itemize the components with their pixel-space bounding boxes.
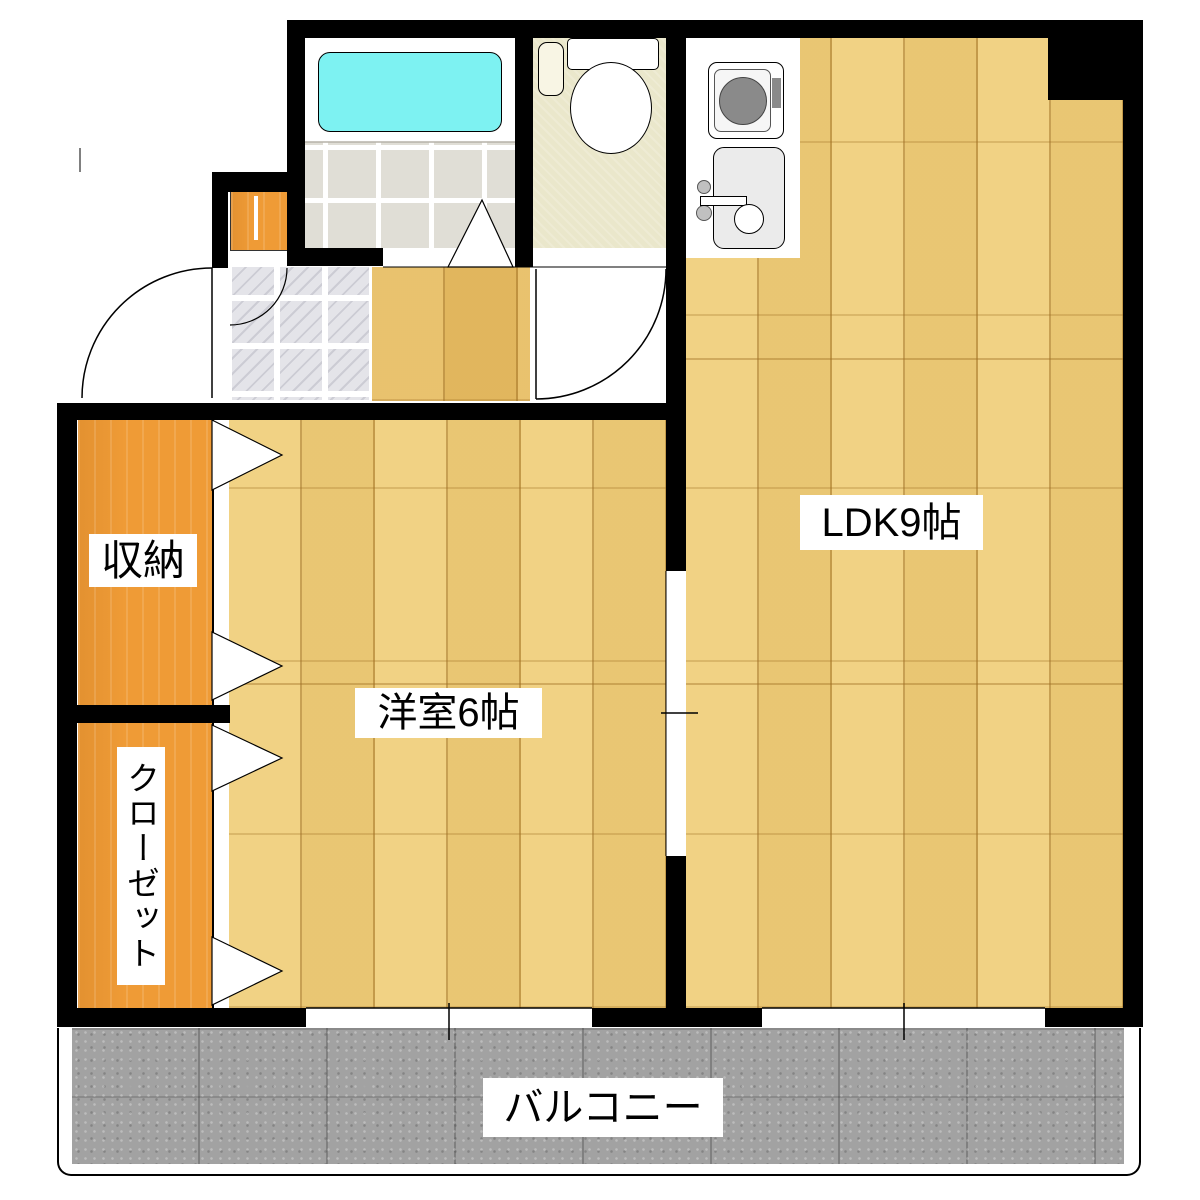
entrance-door-arc: [82, 268, 212, 398]
western-room-label: 洋室6帖: [355, 688, 542, 738]
wall-ldk-divider-lower: [666, 856, 686, 1027]
wall-bath-toilet-divider: [515, 20, 533, 267]
wall-right: [1123, 100, 1143, 1027]
wall-alcove-left: [212, 172, 228, 268]
kitchen-faucet-spout: [734, 204, 764, 234]
floor-plan: LDK9帖 洋室6帖 収納 クローゼット バルコニー: [0, 0, 1200, 1200]
wall-storage-closet-divider: [57, 705, 230, 723]
ldk-label: LDK9帖: [800, 495, 983, 550]
kitchen-faucet-base-2: [696, 205, 712, 221]
bathtub: [318, 52, 502, 132]
kitchen-burner: [719, 77, 767, 125]
storage-label: 収納: [89, 534, 197, 587]
wall-top: [287, 20, 1143, 38]
toilet-washlet-unit: [538, 42, 564, 96]
wall-bottom-left: [57, 1008, 306, 1027]
kitchen-faucet-base-1: [697, 180, 711, 194]
wall-ldk-divider-upper: [666, 20, 686, 571]
wall-top-right-notch: [1048, 38, 1143, 100]
wall-bathroom-left: [287, 20, 305, 263]
bathroom-tile-floor: [305, 142, 515, 248]
genkan-tile-floor: [229, 267, 372, 400]
shoe-cabinet-divider-line: [254, 196, 258, 240]
toilet-door-arc: [536, 269, 666, 399]
wall-hallway-south: [57, 403, 686, 420]
wall-bottom-right: [1045, 1008, 1143, 1027]
hallway-wood-floor: [372, 267, 530, 401]
balcony-label: バルコニー: [483, 1078, 723, 1137]
kitchen-faucet-arm: [700, 196, 747, 206]
wall-bathroom-south: [287, 248, 383, 266]
kitchen-stove-control: [772, 78, 781, 108]
shoe-cabinet: [230, 190, 289, 251]
closet-label: クローゼット: [117, 747, 165, 985]
toilet-bowl: [570, 62, 652, 154]
